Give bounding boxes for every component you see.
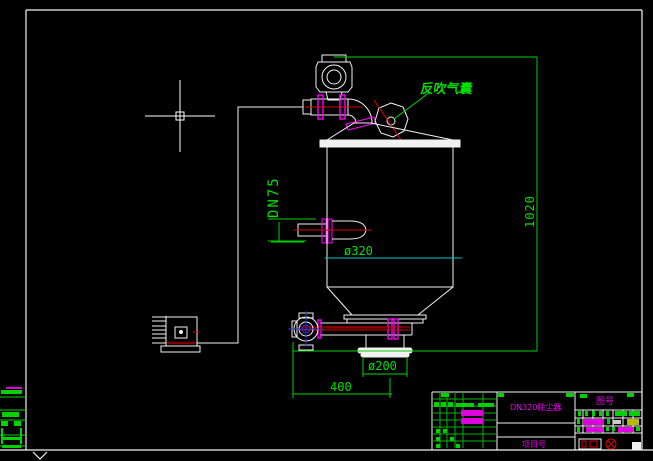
blower[interactable] <box>152 316 200 352</box>
vessel-shell[interactable] <box>327 147 453 287</box>
vessel-roof[interactable] <box>327 123 453 140</box>
text-blob <box>450 437 454 441</box>
text-blob <box>566 393 574 397</box>
text-blob <box>448 402 453 407</box>
edge-marks <box>1 387 22 448</box>
text-blob <box>613 420 621 424</box>
air-bag-centerline <box>374 100 405 146</box>
cone-flange-2 <box>347 319 423 323</box>
project-number-label[interactable]: 项目号 <box>522 440 546 449</box>
scale-box <box>579 439 601 449</box>
blower-pipe-route[interactable] <box>197 100 311 343</box>
text-blob <box>456 403 474 407</box>
text-blob <box>636 427 640 431</box>
bottom-flange-2 <box>361 353 409 357</box>
dim-1020[interactable]: 1020 <box>293 57 537 351</box>
dim-d320-text[interactable]: ø320 <box>344 244 373 258</box>
text-blob <box>583 419 604 425</box>
top-flange[interactable] <box>320 140 460 147</box>
text-blob <box>627 393 634 397</box>
top-valve[interactable] <box>311 55 352 115</box>
elbow[interactable] <box>348 99 372 123</box>
grip-handle[interactable] <box>632 442 641 450</box>
text-blob <box>599 411 602 416</box>
text-blob <box>577 427 580 432</box>
text-blob <box>607 419 610 424</box>
text-blob <box>580 394 587 398</box>
text-blob <box>456 444 460 448</box>
bottom-pipe-flanges <box>318 319 398 339</box>
text-blob <box>1 428 3 444</box>
valve-cap <box>322 55 346 62</box>
text-blob <box>478 403 494 407</box>
cone-right[interactable] <box>418 287 453 315</box>
text-blob <box>6 387 22 389</box>
text-blob <box>615 411 627 416</box>
dim-d200-text[interactable]: ø200 <box>368 359 397 373</box>
text-blob <box>497 393 504 397</box>
text-blob <box>585 411 588 416</box>
text-blob <box>436 429 440 433</box>
left-edge-table-fragment <box>0 387 26 448</box>
text-blob <box>606 427 609 431</box>
crosshair-cursor <box>145 80 215 152</box>
text-blob <box>461 410 483 416</box>
title-block: DN320除尘器 图号 项目号 <box>432 392 642 450</box>
text-blob <box>592 411 595 416</box>
text-blob <box>627 419 639 425</box>
cone-left[interactable] <box>327 287 352 315</box>
text-blob <box>2 412 19 417</box>
air-bag-label[interactable]: 反吹气囊 <box>419 81 474 97</box>
text-blob <box>461 418 483 424</box>
inlet-nozzle[interactable] <box>268 219 372 243</box>
text-blob <box>434 402 439 407</box>
dim-dn75-text[interactable]: DN75 <box>266 176 282 218</box>
title-block-right-header[interactable]: 图号 <box>596 396 614 407</box>
valve-body[interactable] <box>316 62 352 92</box>
text-blob <box>436 437 440 441</box>
text-blob <box>629 411 640 416</box>
text-blob <box>612 427 615 431</box>
cone-flange-1 <box>344 315 426 319</box>
text-blob <box>443 429 447 433</box>
projection-stamp-icon <box>606 439 616 449</box>
text-blob <box>1 421 8 426</box>
text-blob <box>606 411 609 416</box>
dim-400-text[interactable]: 400 <box>330 380 352 394</box>
text-blob <box>20 428 22 444</box>
dim-d320[interactable]: ø320 <box>325 244 462 258</box>
dim-1020-text[interactable]: 1020 <box>523 195 537 228</box>
cad-viewport[interactable]: 反吹气囊 DN75 ø320 <box>0 0 653 461</box>
text-blob <box>586 427 603 432</box>
text-blob <box>578 411 581 416</box>
text-blob <box>14 421 21 426</box>
text-blob <box>577 419 580 424</box>
text-blob <box>441 393 449 397</box>
drawing-title[interactable]: DN320除尘器 <box>510 402 561 412</box>
dim-d200[interactable]: ø200 <box>363 357 407 377</box>
vessel[interactable] <box>320 123 460 323</box>
text-blob <box>2 437 21 440</box>
text-blob <box>2 445 21 448</box>
text-blob <box>618 427 633 432</box>
text-blob <box>441 402 446 407</box>
text-blob <box>436 444 440 448</box>
text-blob <box>1 390 22 394</box>
blower-base <box>161 346 200 352</box>
chevron-down-icon[interactable] <box>33 452 47 459</box>
